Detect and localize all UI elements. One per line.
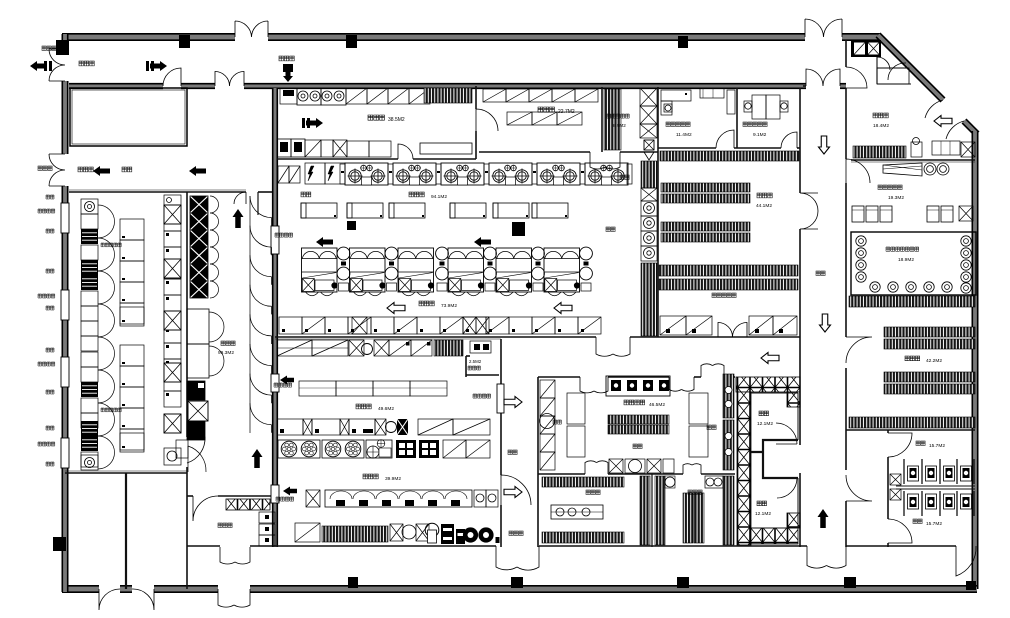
svg-text:11.4M2: 11.4M2 <box>676 132 692 138</box>
svg-text:12.1M2: 12.1M2 <box>757 421 773 427</box>
svg-text:8.9M2: 8.9M2 <box>613 123 626 128</box>
svg-text:9.1M2: 9.1M2 <box>753 132 767 138</box>
svg-text:38.5M2: 38.5M2 <box>388 117 405 123</box>
svg-text:18.4M2: 18.4M2 <box>873 123 889 129</box>
svg-text:22.7M2: 22.7M2 <box>558 109 575 115</box>
svg-text:99.3M2: 99.3M2 <box>218 350 234 356</box>
svg-text:73.9M2: 73.9M2 <box>441 303 457 309</box>
svg-text:39.9M2: 39.9M2 <box>385 476 401 482</box>
svg-text:15.7M2: 15.7M2 <box>926 521 942 527</box>
svg-text:44.1M2: 44.1M2 <box>756 203 772 209</box>
svg-text:49.6M2: 49.6M2 <box>378 406 394 412</box>
svg-text:19.3M2: 19.3M2 <box>888 195 904 201</box>
svg-text:2.5M2: 2.5M2 <box>469 359 482 364</box>
svg-text:18.9M2: 18.9M2 <box>898 257 914 263</box>
svg-text:12.1M2: 12.1M2 <box>755 511 771 517</box>
svg-text:94.1M2: 94.1M2 <box>431 194 447 200</box>
svg-text:15.7M2: 15.7M2 <box>929 443 945 449</box>
svg-text:46.5M2: 46.5M2 <box>649 402 665 408</box>
svg-text:42.2M2: 42.2M2 <box>926 358 942 364</box>
